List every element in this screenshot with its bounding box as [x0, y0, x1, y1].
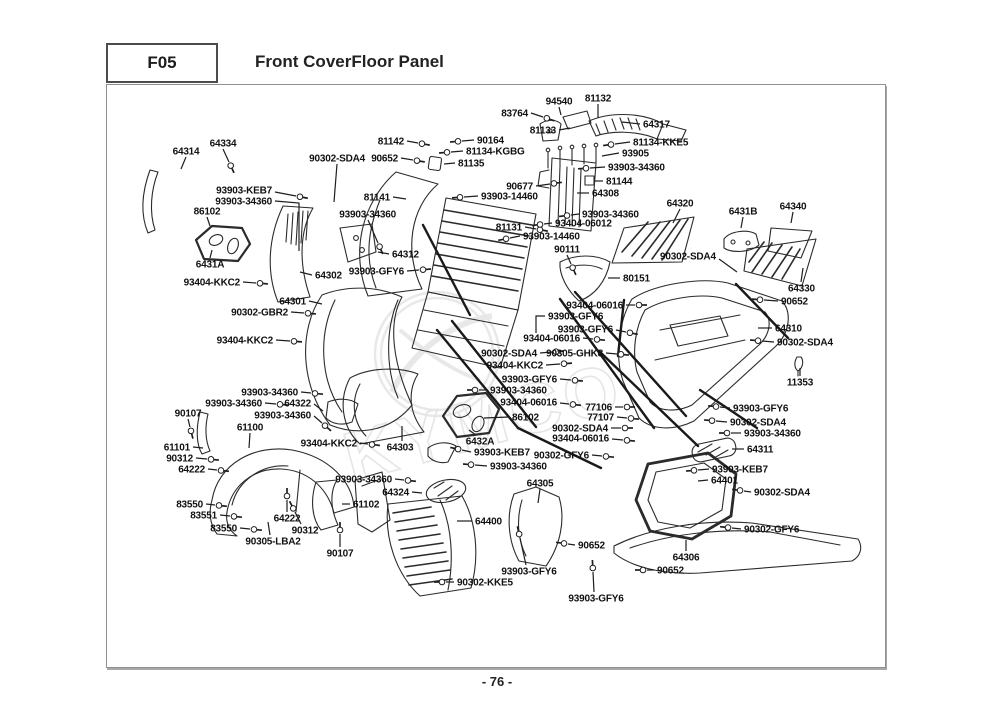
screw-icon: [713, 404, 719, 410]
screw-shaft-icon: [318, 394, 323, 395]
leader-line: [393, 197, 406, 199]
screw-icon: [231, 514, 237, 520]
part-label-93903-GFY6: 93903-GFY6: [733, 404, 789, 415]
part-label-90312: 90312: [166, 454, 193, 465]
screw-icon: [640, 567, 646, 573]
leader-line: [291, 312, 304, 313]
part-label-93903-KEB7: 93903-KEB7: [712, 465, 768, 476]
part-label-93903-34360: 93903-34360: [490, 462, 547, 473]
part-label-64312: 64312: [392, 250, 419, 261]
part-label-64311: 64311: [747, 445, 774, 456]
part-label-83551: 83551: [190, 511, 217, 522]
part-label-93404-06016: 93404-06016: [566, 301, 623, 312]
screw-icon: [188, 428, 194, 434]
part-label-90305-LBA2: 90305-LBA2: [245, 537, 301, 548]
part-label-83550: 83550: [210, 524, 237, 535]
leader-line: [612, 439, 623, 440]
part-label-93903-GFY6: 93903-GFY6: [349, 267, 405, 278]
part-label-81134-KKE5: 81134-KKE5: [633, 138, 689, 149]
screw-icon: [218, 468, 224, 474]
leader-line: [243, 282, 256, 283]
screw-shaft-icon: [603, 145, 608, 146]
leader-line: [732, 528, 741, 529]
leader-line: [378, 252, 389, 254]
part-6431b-hole: [731, 240, 735, 244]
part-label-61101: 61101: [164, 443, 191, 454]
part-label-64317: 64317: [643, 120, 670, 131]
part-label-6431B: 6431B: [729, 207, 757, 218]
part-label-90107: 90107: [327, 549, 354, 560]
part-94540-bracket: [563, 111, 591, 129]
part-label-93903-KEB7: 93903-KEB7: [216, 186, 272, 197]
pin-head2: [558, 146, 562, 150]
leader-line: [615, 142, 630, 144]
leader-line: [207, 217, 210, 226]
part-93905-pins: [548, 147, 596, 168]
screw-icon: [419, 141, 425, 147]
part-label-64301: 64301: [279, 297, 306, 308]
screw-icon: [622, 425, 628, 431]
part-label-81133: 81133: [530, 126, 557, 137]
screw-shaft-icon: [303, 197, 308, 198]
leader-line: [462, 140, 474, 141]
screw-icon: [709, 418, 715, 424]
screw-icon: [590, 565, 596, 571]
part-label-90302-SDA4: 90302-SDA4: [777, 338, 833, 349]
leader-line: [193, 447, 203, 448]
part-label-81135: 81135: [458, 159, 485, 170]
screw-shaft-icon: [576, 405, 581, 406]
leader-line: [275, 192, 296, 196]
part-label-93404-KKC2: 93404-KKC2: [184, 278, 241, 289]
part-label-81132: 81132: [585, 94, 612, 105]
part-label-83550: 83550: [176, 500, 203, 511]
part-label-64308: 64308: [592, 189, 619, 200]
screw-icon: [455, 446, 461, 452]
leader-line: [592, 455, 602, 456]
leader-line: [208, 469, 217, 470]
screw-icon: [570, 265, 576, 271]
part-label-90652: 90652: [578, 541, 605, 552]
leader-line: [764, 300, 778, 301]
leader-line: [301, 392, 311, 393]
leader-line: [268, 522, 270, 535]
part-label-90652: 90652: [781, 297, 808, 308]
part-labels: 643146433493903-KEB793903-34360861026431…: [164, 94, 834, 605]
screw-shaft-icon: [609, 457, 614, 458]
leader-line: [544, 223, 552, 224]
pin-head5: [594, 143, 598, 147]
pin-head4: [582, 144, 586, 148]
part-label-86102: 86102: [512, 413, 539, 424]
leader-line: [716, 421, 727, 422]
screw-shaft-icon: [574, 270, 576, 275]
part-label-93903-GFY6: 93903-GFY6: [568, 594, 624, 605]
screw-icon: [405, 478, 411, 484]
part-label-93903-KEB7: 93903-KEB7: [474, 448, 530, 459]
screw-icon: [757, 297, 763, 303]
screw-icon: [216, 503, 222, 509]
screw-icon: [312, 391, 318, 397]
part-label-90302-KKE5: 90302-KKE5: [457, 578, 513, 589]
part-64330-strip: [744, 239, 816, 286]
screw-icon: [594, 337, 600, 343]
part-floor-frame-detail: [655, 315, 745, 360]
part-11353-knob: [795, 357, 803, 376]
screw-shaft-icon: [556, 542, 561, 543]
screw-icon: [516, 531, 522, 537]
part-label-93404-06016: 93404-06016: [552, 434, 609, 445]
part-label-86102: 86102: [194, 207, 221, 218]
part-floor-frame-inner: [635, 296, 770, 410]
part-inner-cover: [270, 206, 313, 302]
part-label-64401: 64401: [711, 476, 738, 487]
leader-line: [220, 515, 230, 516]
leader-line: [525, 227, 536, 229]
leader-line: [698, 480, 708, 481]
screw-shaft-icon: [559, 216, 564, 217]
screw-shaft-icon: [633, 333, 638, 334]
part-label-93903-34360: 93903-34360: [339, 210, 396, 221]
leader-line: [334, 164, 337, 202]
part-label-90302-SDA4: 90302-SDA4: [309, 154, 365, 165]
part-emblem-oval2: [226, 237, 241, 255]
screw-shaft-icon: [634, 419, 639, 420]
screw-icon: [369, 442, 375, 448]
part-label-64222: 64222: [178, 465, 205, 476]
leader-line: [265, 403, 276, 404]
screw-icon: [737, 488, 743, 494]
part-label-61102: 61102: [353, 500, 380, 511]
leader-line: [741, 217, 743, 228]
part-label-93903-34360: 93903-34360: [205, 399, 262, 410]
screw-shaft-icon: [224, 471, 229, 472]
screw-shaft-icon: [425, 144, 430, 145]
leader-line: [314, 416, 322, 423]
screw-icon: [322, 423, 328, 429]
part-label-64324: 64324: [382, 488, 409, 499]
screw-icon: [414, 158, 420, 164]
leader-line: [451, 151, 463, 152]
parts-catalog-page: F05 Front CoverFloor Panel KYMCO: [0, 0, 1000, 707]
leader-line: [300, 272, 312, 275]
part-label-93404-KKC2: 93404-KKC2: [217, 336, 274, 347]
part-label-64303: 64303: [387, 443, 414, 454]
leader-line: [593, 572, 594, 592]
leader-line: [538, 489, 540, 503]
leader-line: [223, 149, 229, 162]
screw-icon: [618, 352, 624, 358]
leader-line: [240, 528, 250, 529]
leader-line: [536, 316, 545, 333]
leader-line: [196, 458, 207, 459]
screw-icon: [725, 525, 731, 531]
screw-shaft-icon: [257, 530, 262, 531]
part-label-93903-GFY6: 93903-GFY6: [501, 567, 557, 578]
screw-shaft-icon: [450, 447, 455, 448]
screw-icon: [277, 402, 283, 408]
leader-line: [719, 259, 737, 272]
part-label-90107: 90107: [175, 409, 202, 420]
screw-shaft-icon: [498, 239, 503, 240]
leader-line: [801, 268, 803, 282]
part-label-64305: 64305: [527, 479, 554, 490]
part-label-93404-06016: 93404-06016: [523, 334, 580, 345]
leader-line: [602, 153, 619, 156]
screw-shaft-icon: [517, 526, 518, 531]
part-label-11353: 11353: [787, 378, 814, 389]
part-label-90302-GBR2: 90302-GBR2: [231, 308, 289, 319]
screw-icon: [284, 493, 290, 499]
screw-shaft-icon: [557, 182, 562, 183]
part-label-64310: 64310: [775, 324, 802, 335]
part-label-90302-SDA4: 90302-SDA4: [660, 252, 716, 263]
leader-line: [744, 491, 751, 492]
part-label-90302-SDA4: 90302-SDA4: [730, 418, 786, 429]
pin-head: [546, 148, 550, 152]
part-label-90302-GFY6: 90302-GFY6: [744, 525, 800, 536]
screw-shaft-icon: [222, 506, 227, 507]
screw-shaft-icon: [720, 527, 725, 528]
part-label-81134-KGBG: 81134-KGBG: [466, 147, 525, 158]
leader-line: [249, 433, 250, 448]
part-emblem-oval: [208, 233, 225, 248]
screw-icon: [337, 527, 343, 533]
leader-line: [583, 338, 593, 339]
part-fender-ribs: [232, 466, 300, 512]
screw-shaft-icon: [708, 406, 713, 407]
leader-line: [559, 107, 561, 115]
screw-icon: [544, 115, 550, 121]
leader-line: [210, 250, 212, 258]
page-number: - 76 -: [0, 674, 994, 689]
part-label-93903-14460: 93903-14460: [523, 232, 580, 243]
leader-line: [568, 544, 575, 545]
screw-shaft-icon: [420, 161, 425, 162]
part-81135-plate: [428, 156, 442, 171]
screw-icon: [468, 462, 474, 468]
part-81144-block: [585, 176, 594, 185]
screw-icon: [624, 404, 630, 410]
leader-line: [181, 157, 186, 169]
leader-line: [309, 301, 322, 304]
pin-head3: [570, 145, 574, 149]
part-label-93903-34360: 93903-34360: [744, 429, 801, 440]
leader-line: [188, 419, 190, 427]
leader-line: [510, 236, 520, 238]
part-label-93903-14460: 93903-14460: [481, 192, 538, 203]
part-label-90652: 90652: [657, 566, 684, 577]
part-label-64334: 64334: [210, 139, 237, 150]
part-label-90312: 90312: [292, 526, 319, 537]
part-label-93404-KKC2: 93404-KKC2: [301, 439, 358, 450]
leader-line: [464, 196, 478, 197]
screw-shaft-icon: [327, 427, 331, 430]
part-label-90302-SDA4: 90302-SDA4: [754, 488, 810, 499]
screw-shaft-icon: [290, 501, 292, 506]
part-label-93903-34360: 93903-34360: [490, 386, 547, 397]
part-label-93903-GFY6: 93903-GFY6: [502, 375, 558, 386]
part-label-77107: 77107: [587, 413, 614, 424]
screw-icon: [691, 468, 697, 474]
screw-shaft-icon: [732, 489, 737, 490]
part-windshield-trim: [143, 170, 158, 233]
leader-line: [531, 113, 543, 117]
screw-icon: [457, 194, 463, 200]
part-label-93905: 93905: [622, 149, 649, 160]
screw-icon: [636, 302, 642, 308]
screw-icon: [755, 338, 761, 344]
screw-icon: [377, 244, 383, 250]
part-label-90652: 90652: [371, 154, 398, 165]
part-label-90111: 90111: [554, 245, 580, 256]
part-64312-hole: [354, 236, 359, 241]
screw-shaft-icon: [411, 481, 416, 482]
screw-icon: [628, 416, 634, 422]
part-label-94540: 94540: [546, 97, 573, 108]
leader-line: [698, 469, 709, 470]
part-emblem-plate-6431a: [196, 226, 250, 261]
part-label-93903-34360: 93903-34360: [254, 411, 311, 422]
screw-shaft-icon: [237, 517, 242, 518]
part-81132-hatch: [596, 118, 640, 134]
screw-icon: [503, 236, 509, 242]
screw-icon: [570, 402, 576, 408]
leader-line: [567, 255, 571, 264]
screw-icon: [627, 330, 633, 336]
screw-icon: [290, 506, 296, 512]
screw-icon: [572, 378, 578, 384]
part-label-81142: 81142: [378, 137, 405, 148]
leader-line: [762, 341, 774, 342]
part-label-6432A: 6432A: [466, 437, 494, 448]
part-label-81144: 81144: [606, 177, 633, 188]
part-label-80151: 80151: [623, 274, 650, 285]
part-label-64314: 64314: [173, 147, 200, 158]
screw-icon: [297, 194, 303, 200]
part-64324-lens: [424, 476, 468, 506]
screw-icon: [603, 454, 609, 460]
part-label-81141: 81141: [364, 193, 391, 204]
part-floor-rail: [614, 522, 861, 573]
part-label-93903-34360: 93903-34360: [582, 210, 639, 221]
leader-line: [407, 270, 419, 271]
part-footboard-line: [440, 500, 451, 590]
screw-icon: [537, 222, 543, 228]
screw-icon: [444, 150, 450, 156]
screw-icon: [583, 165, 589, 171]
part-label-90305-GHK8: 90305-GHK8: [546, 349, 604, 360]
part-label-93903-34360: 93903-34360: [335, 475, 392, 486]
part-label-93404-06016: 93404-06016: [500, 398, 557, 409]
part-label-64306: 64306: [673, 553, 700, 564]
leader-line: [412, 492, 422, 493]
screw-shaft-icon: [375, 445, 380, 446]
part-label-64340: 64340: [780, 202, 807, 213]
screw-icon: [257, 281, 263, 287]
part-label-64320: 64320: [667, 199, 694, 210]
screw-icon: [561, 361, 567, 367]
part-80151-panel: [560, 256, 610, 301]
part-label-61100: 61100: [237, 423, 264, 434]
leader-line: [407, 141, 418, 143]
screw-icon: [455, 139, 461, 145]
screw-icon: [624, 438, 630, 444]
part-label-93903-GFY6: 93903-GFY6: [548, 312, 604, 323]
exploded-diagram: KYMCO: [0, 0, 1000, 707]
part-label-90164: 90164: [477, 136, 504, 147]
leader-line: [444, 163, 455, 164]
part-label-6431A: 6431A: [196, 260, 224, 271]
leader-line: [276, 340, 290, 341]
part-label-93903-34360: 93903-34360: [608, 163, 665, 174]
leader-line: [314, 404, 323, 411]
screw-shaft-icon: [232, 168, 234, 173]
screw-icon: [608, 142, 614, 148]
leader-line: [590, 167, 605, 168]
screw-icon: [472, 387, 478, 393]
part-6431b-hole2: [746, 241, 750, 245]
part-label-64400: 64400: [475, 517, 502, 528]
screw-icon: [439, 579, 445, 585]
part-label-90302-SDA4: 90302-SDA4: [481, 349, 537, 360]
screw-icon: [305, 311, 311, 317]
screw-icon: [251, 527, 257, 533]
screw-icon: [228, 163, 234, 169]
screw-shaft-icon: [532, 225, 537, 226]
screw-icon: [561, 541, 567, 547]
part-label-81131: 81131: [496, 223, 523, 234]
screw-shaft-icon: [192, 434, 193, 439]
part-label-64322: 64322: [284, 399, 311, 410]
screw-icon: [564, 213, 570, 219]
part-label-93903-34360: 93903-34360: [241, 388, 298, 399]
part-label-64330: 64330: [788, 284, 815, 295]
part-label-83764: 83764: [501, 109, 528, 120]
screw-icon: [724, 430, 730, 436]
screw-icon: [551, 181, 557, 187]
part-label-93404-KKC2: 93404-KKC2: [487, 361, 544, 372]
screw-icon: [291, 338, 297, 344]
part-64312-hole2: [360, 248, 365, 253]
screw-shaft-icon: [600, 340, 605, 341]
part-label-90302-GFY6: 90302-GFY6: [534, 451, 590, 462]
screw-icon: [208, 457, 214, 463]
leader-line: [720, 407, 730, 408]
part-label-64302: 64302: [315, 271, 342, 282]
leader-line: [401, 158, 413, 160]
leader-line: [475, 465, 487, 466]
screw-icon: [420, 267, 426, 273]
part-61102-strip: [313, 480, 338, 530]
leader-line: [791, 212, 793, 223]
part-label-93903-34360: 93903-34360: [215, 197, 272, 208]
leader-line: [206, 504, 215, 505]
